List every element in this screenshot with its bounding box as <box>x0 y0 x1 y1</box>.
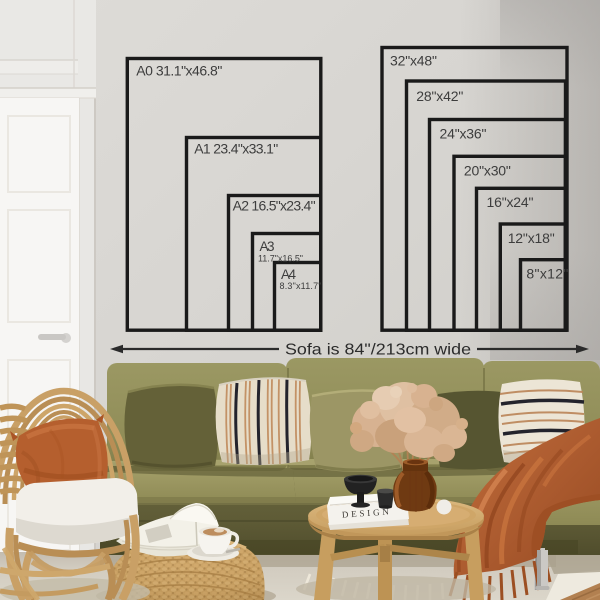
svg-text:8.3"x11.7": 8.3"x11.7" <box>280 281 322 291</box>
svg-text:24"x36": 24"x36" <box>440 126 487 142</box>
svg-text:28"x42": 28"x42" <box>416 88 463 104</box>
svg-text:A0 31.1"x46.8": A0 31.1"x46.8" <box>136 63 222 79</box>
svg-text:32"x48": 32"x48" <box>390 53 437 69</box>
svg-text:Sofa is 84"/213cm wide: Sofa is 84"/213cm wide <box>285 342 471 359</box>
svg-text:11.7"x16.5": 11.7"x16.5" <box>258 254 303 264</box>
svg-text:20"x30": 20"x30" <box>464 163 511 179</box>
svg-text:A3: A3 <box>260 239 275 254</box>
svg-text:8"x12": 8"x12" <box>526 266 568 282</box>
svg-text:A4: A4 <box>281 267 296 282</box>
svg-text:A2 16.5"x23.4": A2 16.5"x23.4" <box>233 198 316 214</box>
svg-text:16"x24": 16"x24" <box>487 194 534 210</box>
svg-text:12"x18": 12"x18" <box>508 230 555 246</box>
svg-text:A1 23.4"x33.1": A1 23.4"x33.1" <box>194 141 278 157</box>
